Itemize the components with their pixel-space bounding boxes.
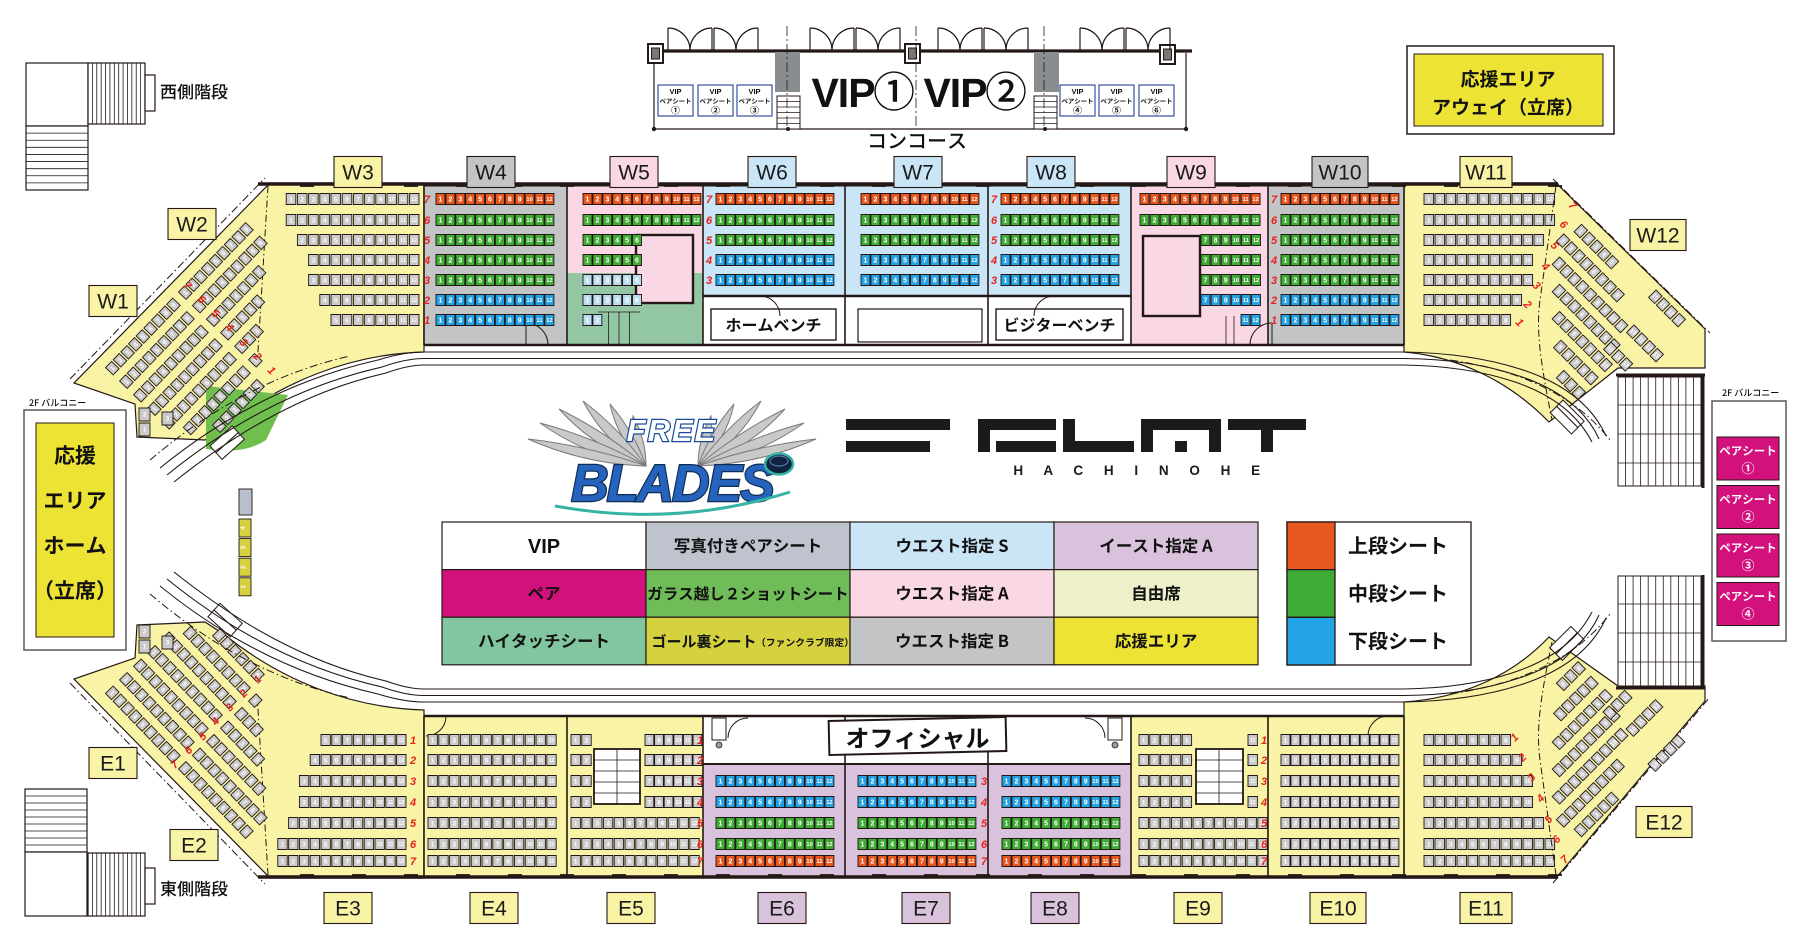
svg-text:E12: E12 <box>1645 812 1682 835</box>
svg-text:2: 2 <box>423 295 430 307</box>
svg-text:4: 4 <box>240 526 247 530</box>
svg-text:4: 4 <box>705 255 712 267</box>
svg-text:5: 5 <box>991 235 998 247</box>
svg-text:3: 3 <box>991 275 997 287</box>
svg-text:VIP: VIP <box>1071 87 1083 96</box>
svg-text:2: 2 <box>409 755 416 767</box>
svg-text:6: 6 <box>424 215 431 227</box>
svg-text:4: 4 <box>1260 797 1267 809</box>
svg-text:6: 6 <box>991 215 998 227</box>
svg-text:7: 7 <box>1261 856 1268 868</box>
svg-text:W1: W1 <box>97 291 129 314</box>
svg-text:4: 4 <box>990 255 997 267</box>
svg-text:6: 6 <box>1261 839 1268 851</box>
svg-text:123456781234567891234567891234: 1234567812345678912345678912345678912345… <box>1427 737 1519 865</box>
svg-text:1: 1 <box>240 585 247 589</box>
svg-text:VIP: VIP <box>748 87 760 96</box>
svg-text:4: 4 <box>409 797 416 809</box>
svg-text:1: 1 <box>1261 735 1267 747</box>
svg-text:7: 7 <box>424 194 431 206</box>
svg-text:7: 7 <box>981 856 988 868</box>
svg-text:VIP: VIP <box>528 536 560 558</box>
svg-text:3: 3 <box>1271 275 1277 287</box>
svg-text:3: 3 <box>981 776 987 788</box>
svg-text:3: 3 <box>424 275 430 287</box>
svg-text:6: 6 <box>697 839 704 851</box>
svg-text:VIP: VIP <box>811 70 874 116</box>
svg-text:101112101112101112101112101112: 1011121011121011121011121011121011121011… <box>670 738 700 865</box>
svg-text:VIP: VIP <box>709 87 721 96</box>
svg-text:W5: W5 <box>618 162 650 185</box>
svg-text:101112101112101112101112101112: 1011121011121011121011121011121011121011… <box>527 738 554 865</box>
svg-text:E5: E5 <box>618 898 644 921</box>
svg-text:5: 5 <box>1261 818 1268 830</box>
svg-text:4: 4 <box>423 255 430 267</box>
svg-text:E7: E7 <box>913 898 939 921</box>
svg-text:5: 5 <box>410 818 417 830</box>
svg-text:4: 4 <box>696 797 703 809</box>
svg-text:W7: W7 <box>902 162 934 185</box>
svg-text:7: 7 <box>706 194 713 206</box>
svg-text:5: 5 <box>706 235 713 247</box>
svg-text:3: 3 <box>706 275 712 287</box>
svg-text:3: 3 <box>697 776 703 788</box>
svg-text:5: 5 <box>697 818 704 830</box>
svg-text:6: 6 <box>410 839 417 851</box>
svg-text:E9: E9 <box>1185 898 1211 921</box>
svg-text:5: 5 <box>1271 235 1278 247</box>
svg-text:E1: E1 <box>100 753 126 776</box>
svg-text:7: 7 <box>410 856 417 868</box>
svg-text:E3: E3 <box>335 898 361 921</box>
svg-text:7: 7 <box>1271 194 1278 206</box>
svg-text:E6: E6 <box>769 898 795 921</box>
svg-text:101112101112101112101112101112: 1011121011121011121011121011121011121011… <box>377 738 404 865</box>
svg-text:5: 5 <box>981 818 988 830</box>
svg-text:3: 3 <box>240 545 247 549</box>
svg-text:6: 6 <box>981 839 988 851</box>
svg-text:3: 3 <box>1261 776 1267 788</box>
svg-text:1: 1 <box>697 735 703 747</box>
svg-text:2: 2 <box>1270 295 1277 307</box>
svg-text:W6: W6 <box>756 162 788 185</box>
svg-text:W12: W12 <box>1636 225 1679 248</box>
svg-text:2: 2 <box>240 565 247 569</box>
svg-text:5: 5 <box>424 235 431 247</box>
svg-text:FREE: FREE <box>627 413 718 448</box>
svg-text:VIP: VIP <box>923 70 986 116</box>
svg-text:123456789123456789123456789123: 1234567891234567891234567891234567891234… <box>431 737 521 865</box>
svg-text:E10: E10 <box>1319 898 1356 921</box>
svg-text:101112101112101112101112101112: 1011121011121011121011121011121011121011… <box>1372 738 1398 865</box>
svg-text:E8: E8 <box>1042 898 1068 921</box>
svg-text:W3: W3 <box>342 162 374 185</box>
svg-text:VIP: VIP <box>1110 87 1122 96</box>
svg-text:H A C H I N O H E: H A C H I N O H E <box>1013 463 1268 478</box>
svg-text:W4: W4 <box>475 162 507 185</box>
svg-text:VIP: VIP <box>669 87 681 96</box>
svg-text:7: 7 <box>697 856 704 868</box>
svg-text:W10: W10 <box>1318 162 1361 185</box>
svg-text:2: 2 <box>696 755 703 767</box>
svg-text:4: 4 <box>980 797 987 809</box>
svg-text:2: 2 <box>1260 755 1267 767</box>
svg-text:123456789123456789123456789123: 1234567891234567891234567891234567891234… <box>1284 737 1367 865</box>
svg-text:W9: W9 <box>1175 162 1207 185</box>
svg-text:1: 1 <box>410 735 416 747</box>
svg-text:3: 3 <box>410 776 416 788</box>
svg-text:W11: W11 <box>1465 162 1507 185</box>
svg-text:E2: E2 <box>181 835 207 858</box>
svg-text:7: 7 <box>991 194 998 206</box>
svg-text:VIP: VIP <box>1150 87 1162 96</box>
svg-text:6: 6 <box>706 215 713 227</box>
svg-text:E4: E4 <box>481 898 507 921</box>
svg-text:6: 6 <box>1271 215 1278 227</box>
svg-text:1: 1 <box>1271 315 1277 327</box>
svg-text:4: 4 <box>1270 255 1277 267</box>
svg-text:E11: E11 <box>1468 898 1504 921</box>
svg-text:W2: W2 <box>176 214 208 237</box>
svg-text:W8: W8 <box>1035 162 1067 185</box>
svg-text:1: 1 <box>424 315 430 327</box>
